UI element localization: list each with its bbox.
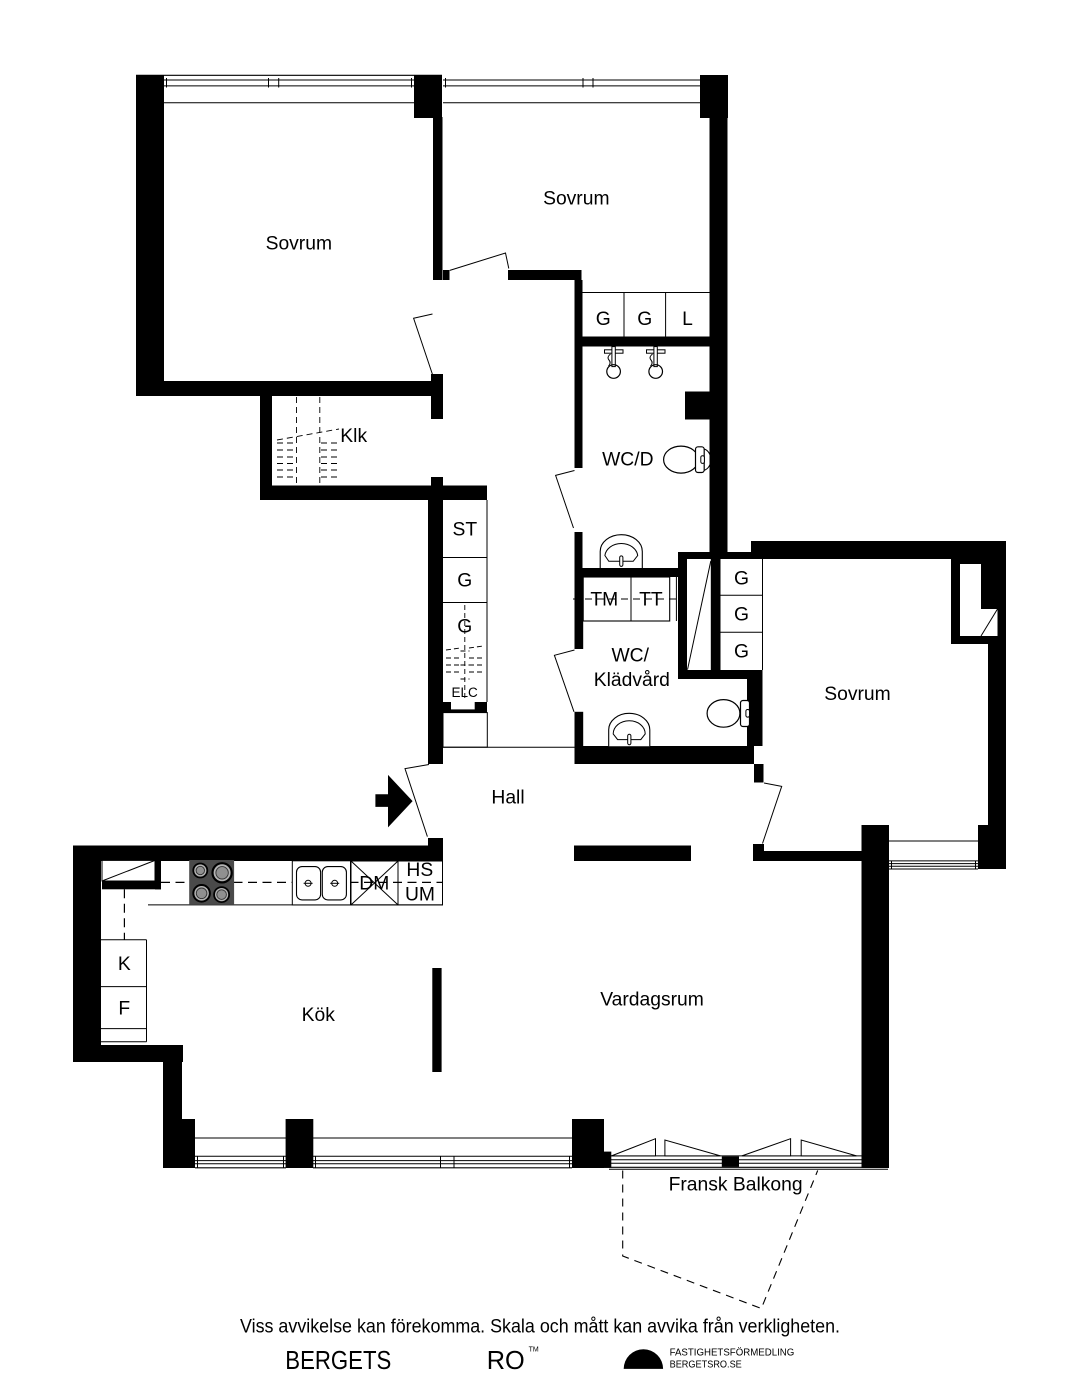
svg-text:Hall: Hall [491,788,524,809]
svg-text:RO: RO [487,1345,525,1375]
svg-text:Klk: Klk [340,426,367,447]
svg-text:G: G [637,309,652,330]
svg-text:G: G [596,309,611,330]
svg-text:Kök: Kök [302,1005,336,1026]
svg-text:G: G [734,642,749,663]
svg-text:L: L [682,309,693,330]
svg-text:F: F [118,999,130,1020]
svg-text:Fransk Balkong: Fransk Balkong [669,1175,803,1196]
svg-text:TM: TM [529,1347,539,1354]
svg-text:TT: TT [639,589,663,610]
svg-text:WC/: WC/ [611,646,649,667]
svg-text:G: G [734,605,749,626]
svg-text:DM: DM [359,874,389,895]
svg-text:K: K [118,954,131,975]
svg-text:WC/D: WC/D [602,449,653,470]
svg-text:Sovrum: Sovrum [266,234,332,255]
svg-text:UM: UM [405,885,435,906]
svg-text:Klädvård: Klädvård [594,669,670,691]
svg-text:BERGETSRO.SE: BERGETSRO.SE [670,1360,743,1371]
svg-text:ST: ST [452,519,477,540]
svg-text:G: G [457,617,472,638]
svg-text:BERGETS: BERGETS [285,1345,391,1375]
svg-text:Vardagsrum: Vardagsrum [600,990,704,1011]
svg-text:G: G [734,569,749,590]
svg-text:FASTIGHETSFÖRMEDLING: FASTIGHETSFÖRMEDLING [670,1347,795,1358]
svg-text:HS: HS [406,860,433,881]
svg-text:Viss avvikelse kan förekomma.: Viss avvikelse kan förekomma. Skala och … [240,1317,840,1338]
svg-text:G: G [457,571,472,592]
svg-text:Sovrum: Sovrum [824,684,890,705]
svg-text:Sovrum: Sovrum [543,189,609,210]
svg-text:TM: TM [590,589,618,610]
